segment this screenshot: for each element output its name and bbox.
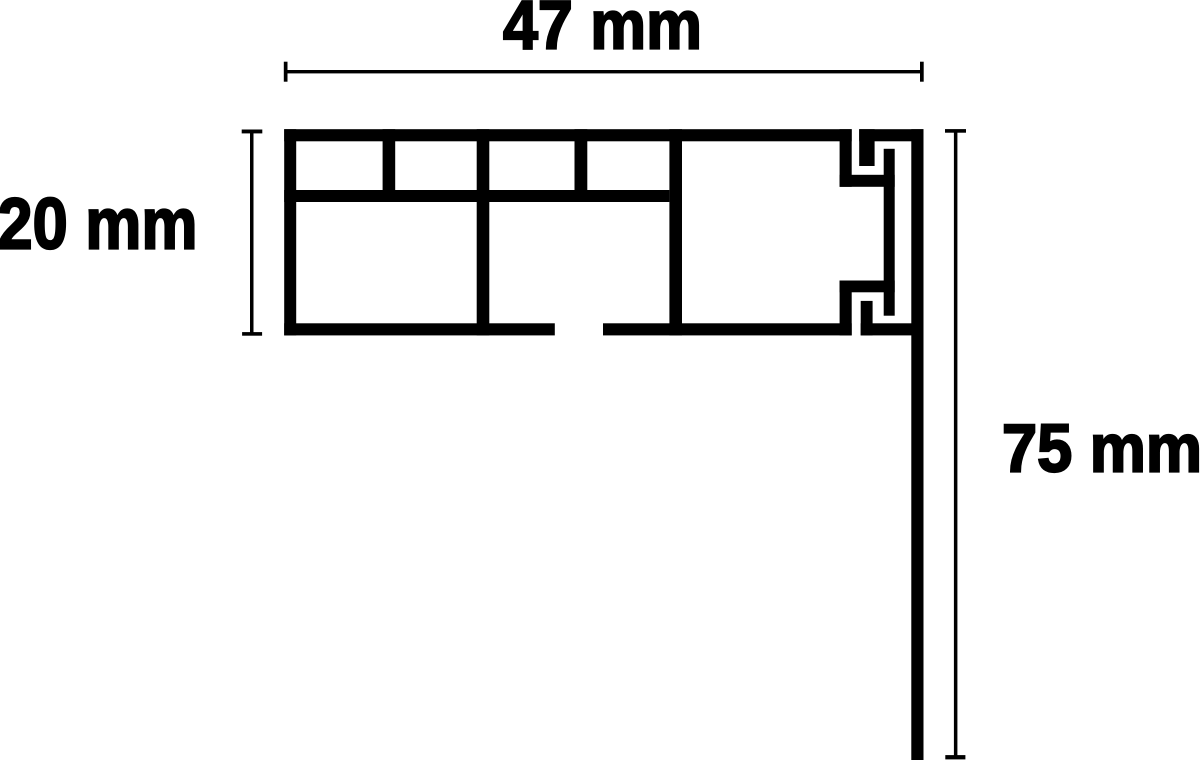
svg-text:20 mm: 20 mm <box>0 185 198 265</box>
svg-text:75 mm: 75 mm <box>1002 411 1200 486</box>
svg-text:47 mm: 47 mm <box>503 0 702 64</box>
